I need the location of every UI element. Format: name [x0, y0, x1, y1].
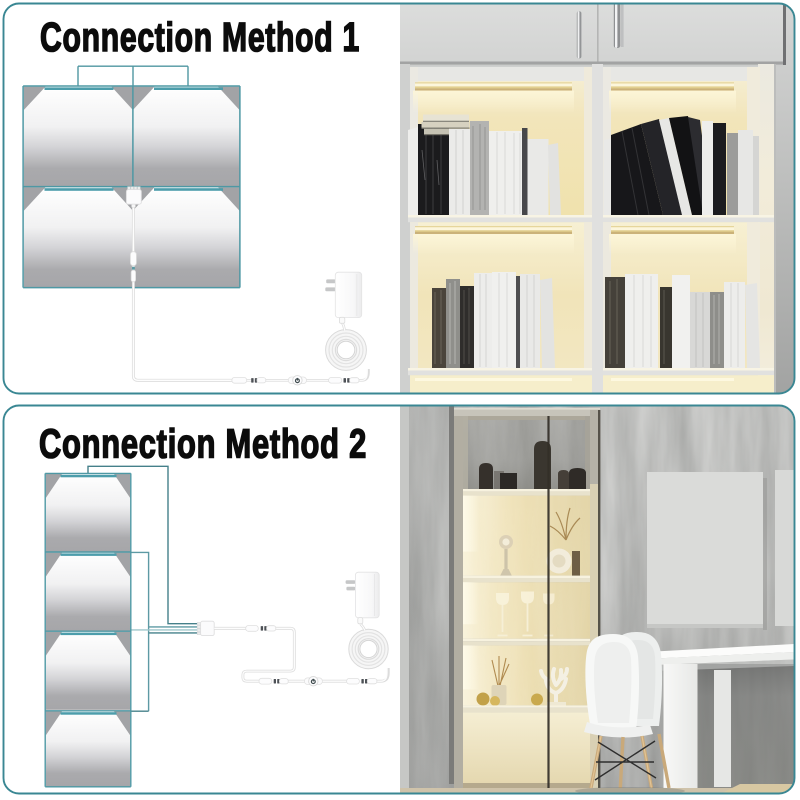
svg-text:Connection Method 1: Connection Method 1	[40, 14, 360, 60]
svg-text:Connection Method 2: Connection Method 2	[39, 421, 367, 467]
